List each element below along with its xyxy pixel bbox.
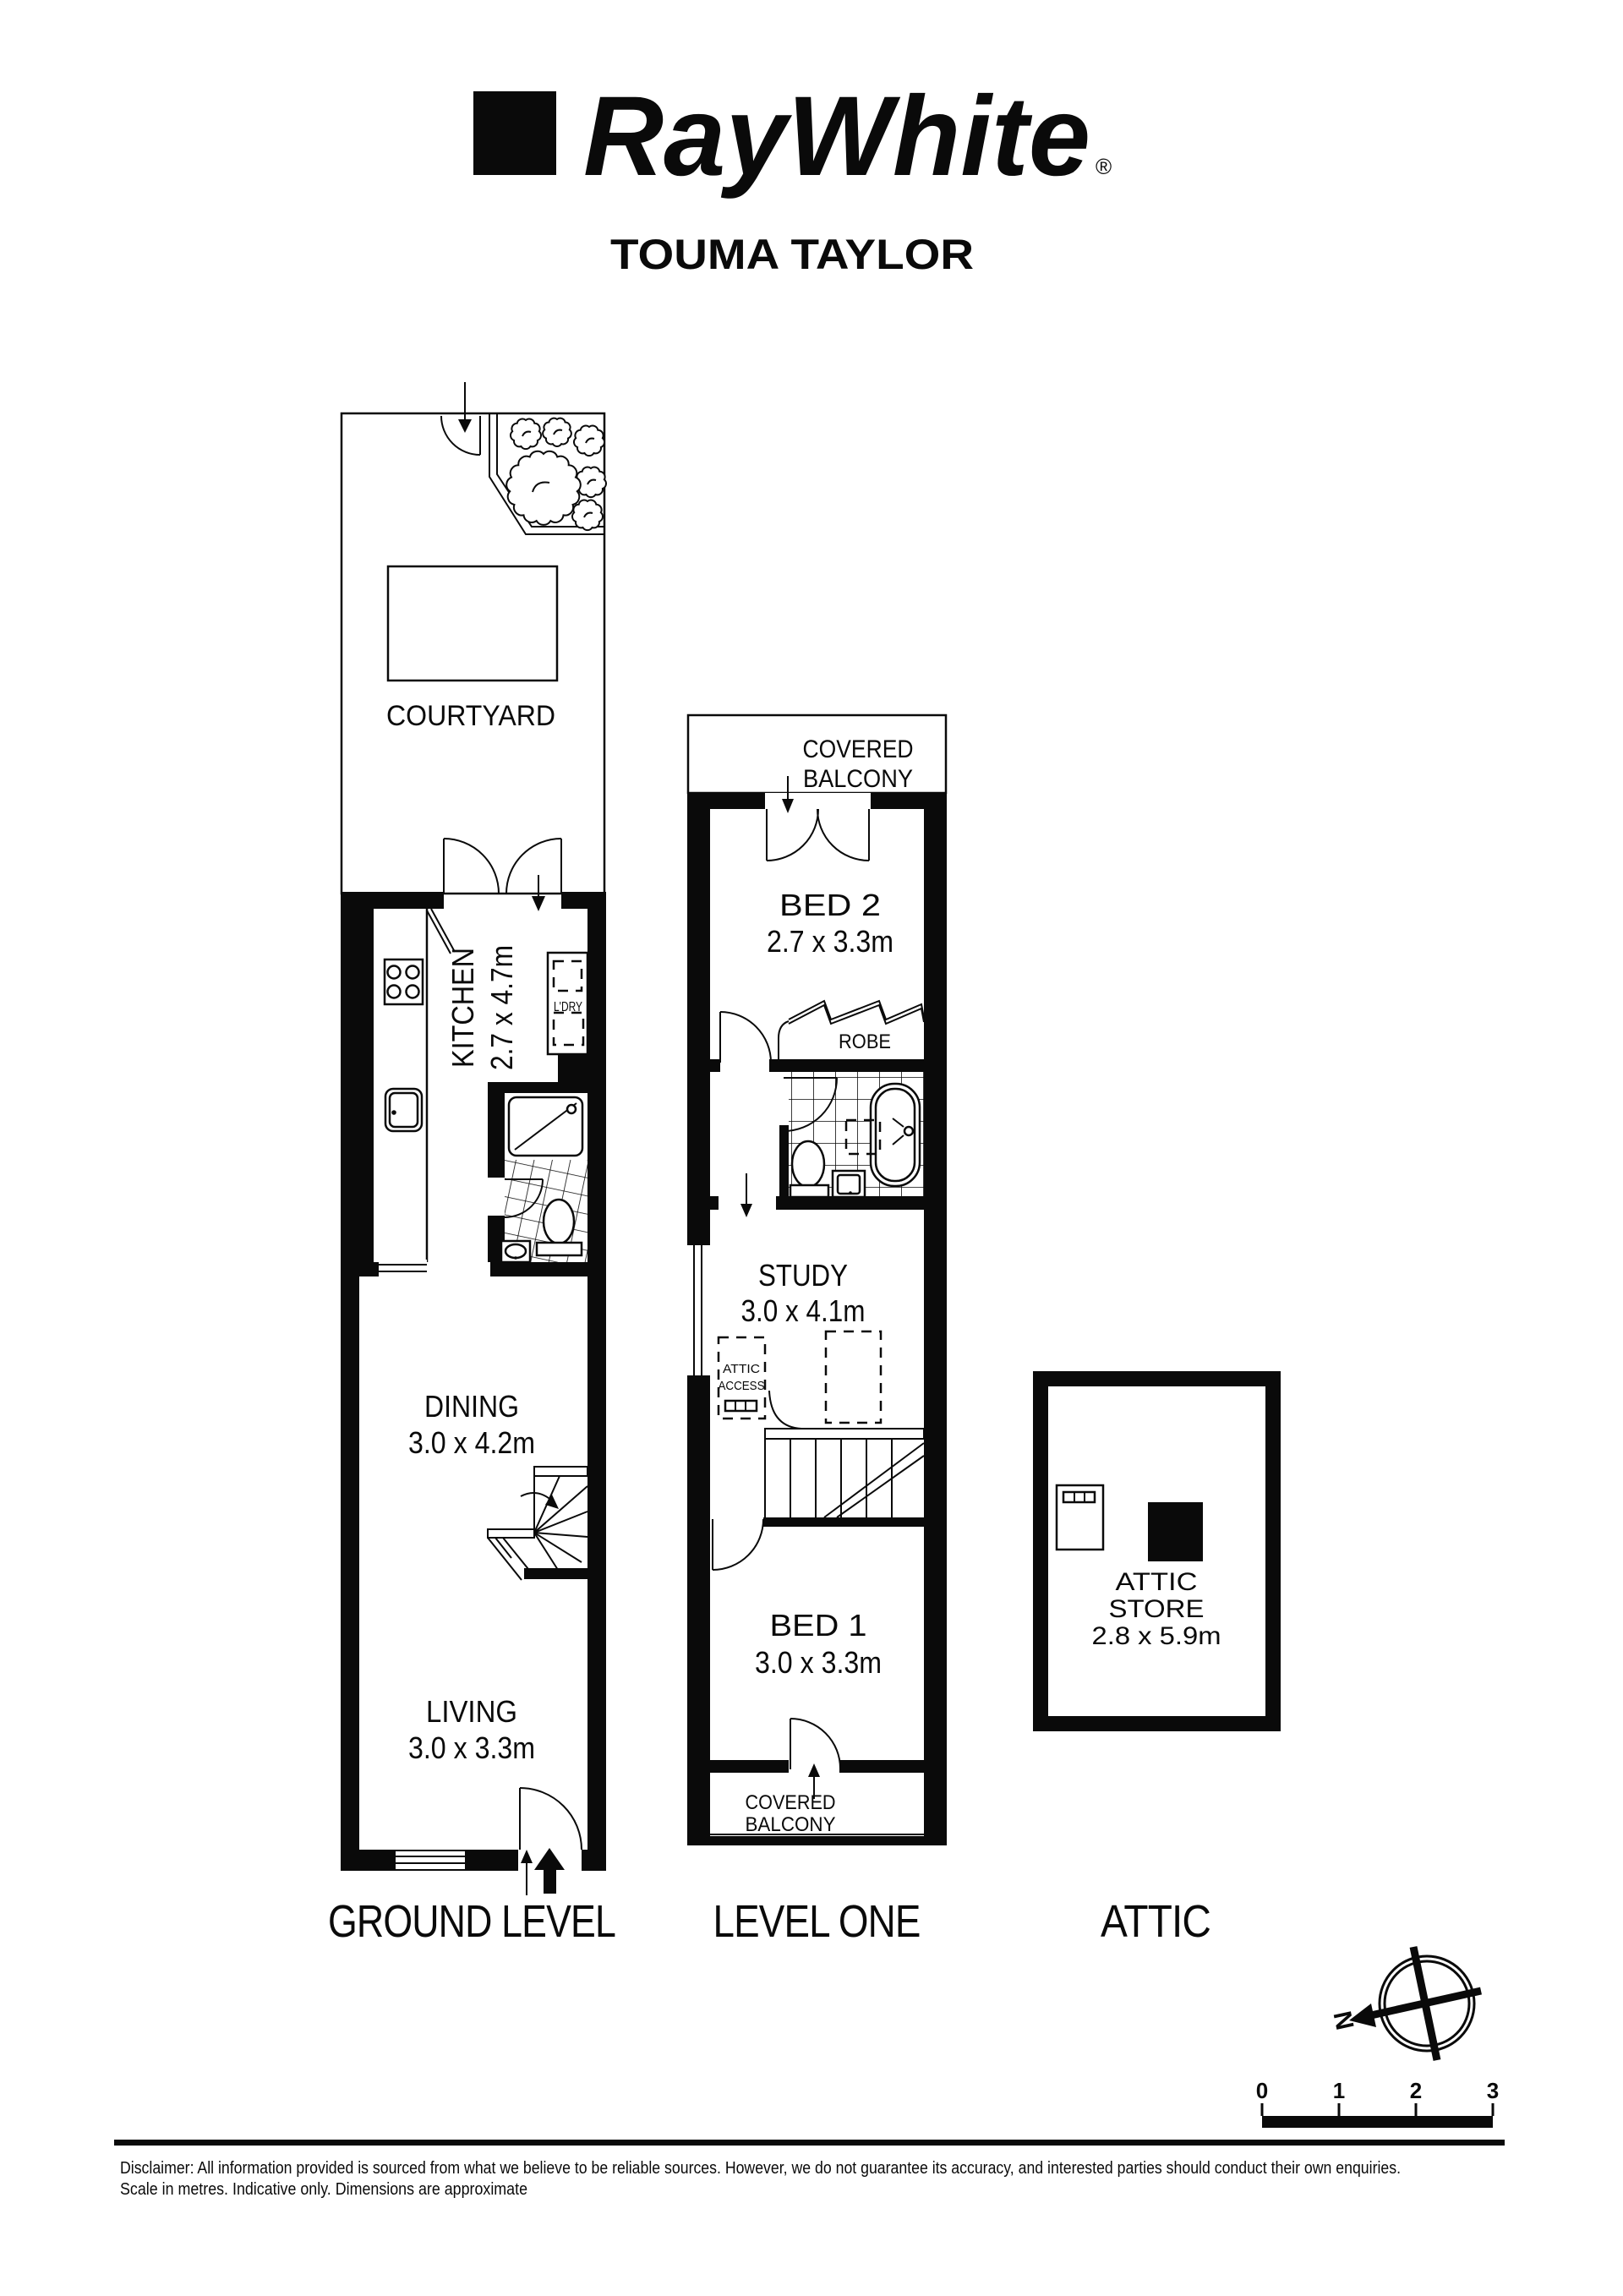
room-label-bed1: BED 1 (770, 1608, 867, 1643)
room-label-attic-store-2: STORE (1109, 1595, 1205, 1623)
scale-tick-label: 2 (1410, 2078, 1422, 2103)
registered-trademark-icon: ® (1096, 154, 1112, 179)
room-label-bed2: BED 2 (779, 888, 881, 922)
french-doors (444, 839, 561, 894)
attic-hatch-icon (1057, 1485, 1103, 1550)
wall (776, 1196, 924, 1210)
room-dims-dining: 3.0 x 4.2m (408, 1425, 535, 1460)
agency-name: TOUMA TAYLOR (610, 231, 974, 278)
level-one-plan: COVERED BALCONY (687, 715, 947, 1947)
room-dims-living: 3.0 x 3.3m (408, 1730, 535, 1765)
room-dims-kitchen: 2.7 x 4.7m (484, 945, 519, 1070)
floorplan-document: RayWhite ® TOUMA TAYLOR (0, 0, 1623, 2296)
attic-access-label-1: ATTIC (723, 1362, 760, 1376)
attic-plan: ATTIC STORE 2.8 x 5.9m ATTIC (1033, 1371, 1281, 1947)
wall (558, 1054, 587, 1082)
door-arc (506, 839, 561, 894)
attic-access: ATTIC ACCESS (719, 1337, 766, 1419)
scale-tick-label: 1 (1333, 2078, 1345, 2103)
laundry-cupboard: L'DRY (548, 953, 587, 1054)
brand-logo: RayWhite ® (473, 74, 1112, 200)
door-arc (817, 809, 869, 861)
wall (710, 1196, 719, 1210)
void-outline (826, 1331, 881, 1423)
wall (769, 1059, 924, 1072)
appliance-outline (554, 961, 582, 991)
room-label-balcony-top-2: BALCONY (803, 765, 913, 793)
scale-bar-rule (1262, 2116, 1493, 2128)
room-label-attic-store-1: ATTIC (1116, 1568, 1198, 1596)
balcony-doors (767, 809, 869, 861)
door-leaf (427, 910, 451, 954)
door-arc (444, 839, 499, 894)
room-label-dining: DINING (424, 1389, 519, 1424)
ladder-icon (725, 1401, 757, 1411)
window (379, 1260, 427, 1277)
bush-icon (574, 426, 604, 456)
stairs-level-one (765, 1391, 924, 1517)
compass: N (1329, 1947, 1481, 2060)
room-label-study: STUDY (758, 1258, 848, 1293)
wall (490, 1262, 606, 1276)
room-label-balcony-bottom-2: BALCONY (746, 1813, 836, 1836)
wall (587, 892, 606, 1871)
room-dims-bed1: 3.0 x 3.3m (755, 1645, 882, 1680)
wall (687, 1836, 947, 1845)
door-arc (520, 1788, 582, 1850)
room-dims-study: 3.0 x 4.1m (741, 1293, 866, 1328)
appliance-outline (554, 1013, 583, 1045)
room-label-laundry: L'DRY (554, 1000, 582, 1014)
brand-logo-square (473, 91, 556, 175)
bush-icon (511, 419, 541, 450)
bush-icon (572, 500, 603, 531)
stove-icon (385, 959, 423, 1004)
disclaimer-line-1: Disclaimer: All information provided is … (120, 2159, 1401, 2178)
window (687, 1245, 710, 1375)
brand-wordmark: RayWhite (583, 74, 1090, 200)
compass-north-label: N (1329, 2009, 1360, 2032)
sink-icon (385, 1089, 422, 1131)
front-door (520, 1788, 582, 1850)
ground-bathroom (501, 1097, 587, 1262)
garden-bushes (506, 418, 606, 530)
door-arc (790, 1719, 840, 1768)
room-label-kitchen: KITCHEN (445, 948, 480, 1068)
level-label-ground: GROUND LEVEL (328, 1896, 615, 1947)
bed1-balcony-door (790, 1719, 840, 1769)
scale-bar: 0 1 2 3 (1256, 2078, 1499, 2128)
disclaimer-line-2: Scale in metres. Indicative only. Dimens… (120, 2180, 527, 2199)
door-arc (767, 809, 818, 861)
door-opening (765, 793, 871, 809)
wall (839, 1760, 947, 1773)
room-label-balcony-bottom-1: COVERED (746, 1791, 836, 1814)
stair-rail (769, 1391, 801, 1429)
scale-tick-label: 0 (1256, 2078, 1268, 2103)
room-label-courtyard: COURTYARD (386, 700, 555, 732)
room-label-robe: ROBE (839, 1030, 891, 1053)
wall (488, 1082, 587, 1093)
ground-level-plan: COURTYARD (328, 382, 615, 1947)
level-one-bathroom (784, 1072, 924, 1197)
bush-icon (506, 451, 581, 525)
level-label-attic: ATTIC (1101, 1896, 1210, 1947)
chimney-block (1148, 1502, 1203, 1561)
wall (924, 809, 947, 1845)
entry-arrow-top (458, 382, 472, 433)
vanity-icon (833, 1171, 865, 1197)
wall (779, 1125, 789, 1198)
door-arc (720, 1012, 771, 1063)
door-arc (713, 1519, 763, 1570)
bed2-door (720, 1012, 771, 1063)
wall (687, 1760, 789, 1773)
room-dims-attic-store: 2.8 x 5.9m (1092, 1622, 1221, 1650)
wall (763, 1517, 924, 1527)
footer-divider (114, 2140, 1505, 2146)
room-dims-bed2: 2.7 x 3.3m (767, 924, 893, 959)
bed1-door (713, 1519, 763, 1570)
winder-stairs (488, 1467, 589, 1580)
courtyard-area: COURTYARD (342, 382, 606, 911)
scale-tick-label: 3 (1487, 2078, 1499, 2103)
bathtub-icon (871, 1084, 920, 1186)
room-label-balcony-top-1: COVERED (803, 735, 914, 763)
attic-access-label-2: ACCESS (719, 1379, 765, 1393)
entry-arrow-study (740, 1173, 752, 1217)
window (396, 1851, 465, 1869)
robe-icon: ROBE (779, 1001, 924, 1059)
bush-icon (543, 418, 571, 446)
wall (341, 892, 374, 1264)
courtyard-paving (388, 566, 557, 681)
wall (488, 1093, 505, 1178)
floorplan-canvas: RayWhite ® TOUMA TAYLOR (0, 0, 1623, 2296)
wall (341, 1262, 359, 1871)
basin-icon (501, 1241, 530, 1262)
wall (710, 1059, 720, 1072)
shower-icon (509, 1097, 582, 1156)
door-leaf (431, 909, 455, 952)
level-label-one: LEVEL ONE (713, 1896, 921, 1947)
room-label-living: LIVING (426, 1694, 517, 1729)
